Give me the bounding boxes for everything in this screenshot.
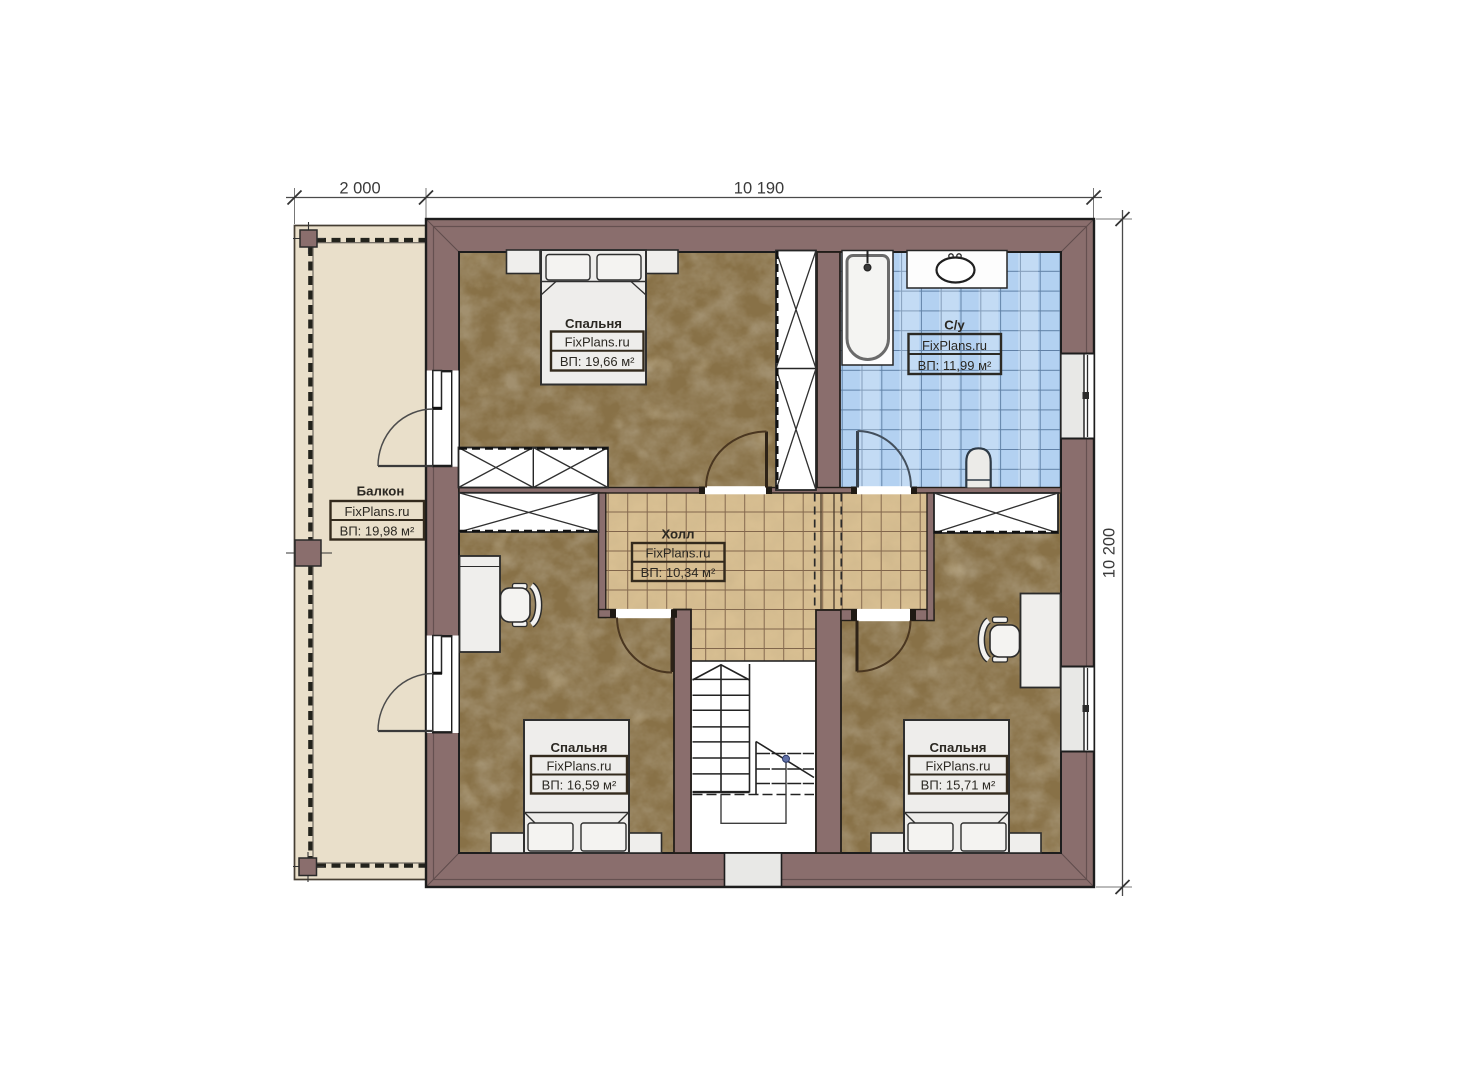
svg-text:С/у: С/у <box>944 318 965 333</box>
svg-text:Спальня: Спальня <box>565 316 622 331</box>
svg-text:FixPlans.ru: FixPlans.ru <box>922 338 987 353</box>
svg-text:FixPlans.ru: FixPlans.ru <box>344 504 409 519</box>
svg-text:2 000: 2 000 <box>339 180 380 198</box>
svg-text:10 200: 10 200 <box>1101 528 1119 578</box>
svg-text:FixPlans.ru: FixPlans.ru <box>546 759 611 774</box>
svg-text:ВП: 10,34 м²: ВП: 10,34 м² <box>641 565 716 580</box>
svg-text:Холл: Холл <box>661 527 694 542</box>
svg-text:Спальня: Спальня <box>551 740 608 755</box>
svg-text:Спальня: Спальня <box>930 740 987 755</box>
svg-text:ВП: 16,59 м²: ВП: 16,59 м² <box>542 778 617 793</box>
svg-text:ВП: 19,98 м²: ВП: 19,98 м² <box>340 524 415 539</box>
svg-text:10 190: 10 190 <box>734 180 784 198</box>
svg-text:ВП: 19,66 м²: ВП: 19,66 м² <box>560 354 635 369</box>
svg-text:ВП: 15,71 м²: ВП: 15,71 м² <box>921 778 996 793</box>
svg-text:Балкон: Балкон <box>357 484 405 499</box>
svg-text:FixPlans.ru: FixPlans.ru <box>645 546 710 561</box>
svg-text:ВП: 11,99 м²: ВП: 11,99 м² <box>918 358 992 373</box>
svg-text:FixPlans.ru: FixPlans.ru <box>925 759 990 774</box>
svg-text:FixPlans.ru: FixPlans.ru <box>565 335 630 350</box>
